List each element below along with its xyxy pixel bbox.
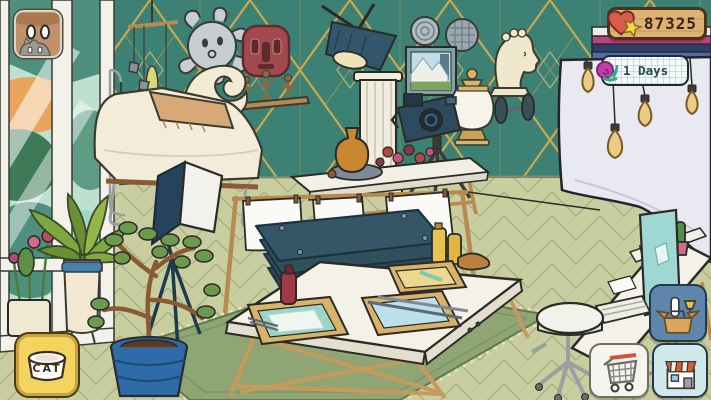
shop-button[interactable] xyxy=(652,343,708,398)
days-badge[interactable]: 1 Days xyxy=(601,55,689,86)
snail-icon xyxy=(595,57,621,85)
shopping-cart-icon xyxy=(596,349,642,393)
cat-button[interactable]: CAT xyxy=(16,334,78,396)
cat-button-label: CAT xyxy=(23,362,71,375)
residents-avatar-icon xyxy=(16,13,59,56)
avatar-button[interactable] xyxy=(14,10,62,58)
shop-house-icon xyxy=(658,349,702,393)
furniture-box-icon xyxy=(654,289,702,337)
days-badge-label: 1 Days xyxy=(621,63,668,78)
red-tribal-mask xyxy=(243,26,289,76)
heart-plus-icon xyxy=(604,7,644,40)
game-screen: 87325 1 Days CAT xyxy=(0,0,711,400)
cart-button[interactable] xyxy=(589,343,649,398)
heart-counter[interactable]: 87325 xyxy=(607,7,707,40)
furniture-button[interactable] xyxy=(649,284,707,342)
heart-counter-value: 87325 xyxy=(644,14,704,33)
landscape-painting xyxy=(406,47,456,95)
